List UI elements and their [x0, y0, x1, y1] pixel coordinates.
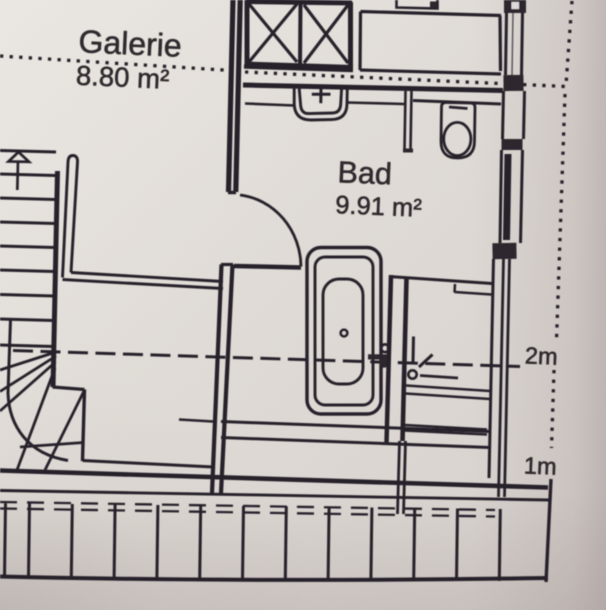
svg-text:Bad: Bad — [337, 155, 393, 191]
svg-text:9.91 m²: 9.91 m² — [335, 191, 423, 223]
svg-text:Galerie: Galerie — [78, 23, 183, 64]
svg-text:2m: 2m — [524, 342, 558, 369]
svg-text:1m: 1m — [523, 452, 557, 479]
